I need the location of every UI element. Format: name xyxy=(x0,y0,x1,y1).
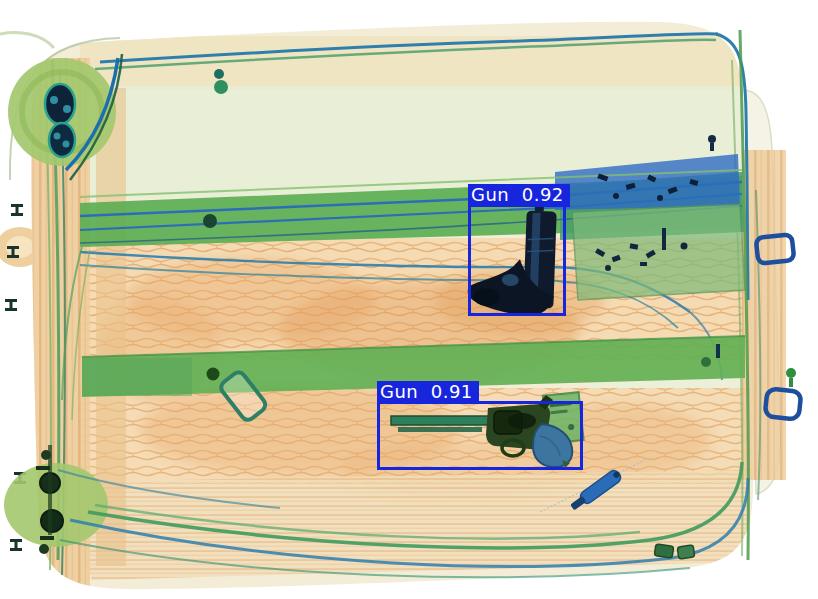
detection-label-gun-2: Gun 0.91 xyxy=(377,381,479,404)
xray-scan-view: Gun 0.92 Gun 0.91 xyxy=(0,0,818,599)
frame-panel xyxy=(572,204,745,300)
xray-image xyxy=(0,0,818,599)
strap-rivet xyxy=(203,214,217,228)
detection-box-gun-2: Gun 0.91 xyxy=(377,401,583,470)
detection-label-gun-1: Gun 0.92 xyxy=(468,184,570,207)
detection-box-gun-1: Gun 0.92 xyxy=(468,204,566,316)
strap-rivet xyxy=(207,368,220,381)
